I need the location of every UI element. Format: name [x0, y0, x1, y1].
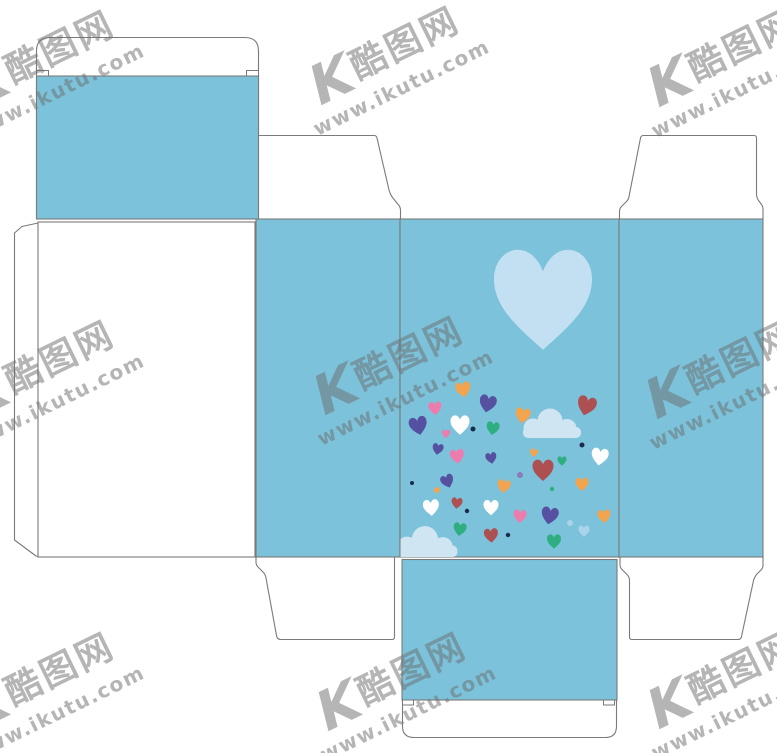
lid-notch-left	[37, 71, 49, 77]
side-left-bottom-dust-flap	[256, 557, 395, 640]
confetti-dot	[410, 481, 414, 485]
bottom-tuck-flap	[403, 700, 617, 738]
confetti-dot	[465, 509, 469, 513]
confetti-dot	[434, 487, 440, 493]
side-right-top-dust-flap	[620, 136, 764, 220]
confetti-dot	[506, 533, 510, 537]
confetti-dot	[580, 443, 585, 448]
left-glue-tab	[15, 223, 39, 557]
dieline-svg	[0, 0, 777, 753]
side-right-bottom-dust-flap	[620, 557, 763, 640]
lid-notch-right	[247, 71, 259, 77]
bottom-panel	[402, 560, 617, 701]
side-right-panel	[619, 219, 763, 557]
lid-panel	[37, 76, 259, 219]
confetti-dot	[567, 520, 573, 526]
back-panel	[38, 222, 255, 557]
side-left-top-dust-flap	[258, 136, 401, 220]
confetti-dot	[471, 427, 476, 432]
confetti-dot	[550, 487, 554, 491]
side-left-panel	[256, 219, 400, 557]
confetti-dot	[517, 472, 523, 478]
bottom-notch-right	[604, 700, 615, 705]
bottom-notch-left	[403, 700, 414, 705]
dieline-canvas: K 酷图网 www.ikutu.com K 酷图网 www.ikutu.com …	[0, 0, 777, 753]
